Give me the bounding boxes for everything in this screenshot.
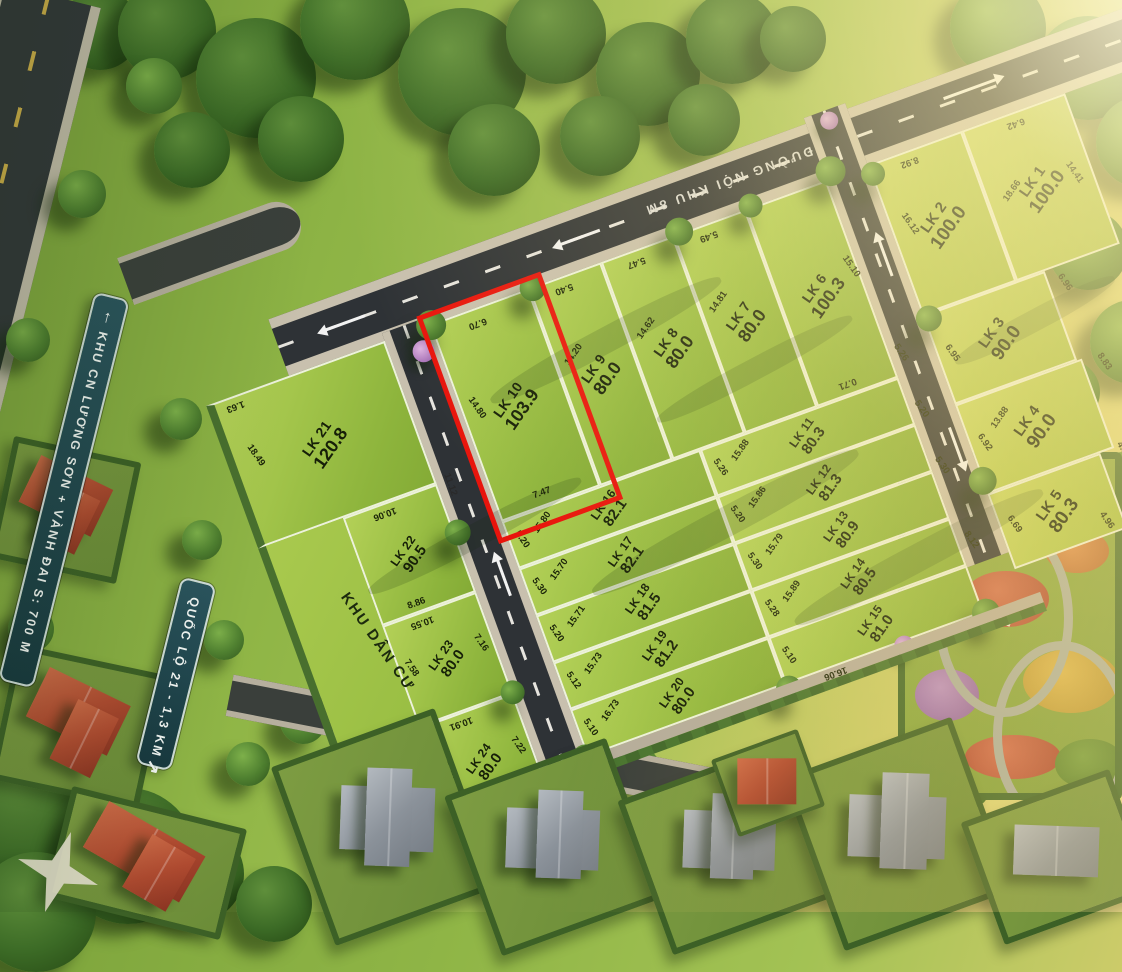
branch-road-stub (117, 195, 308, 305)
plot-dim: 6.95 (943, 342, 963, 363)
plot-dim: 5.20 (547, 623, 567, 644)
arrow-up-icon: ↑ (101, 307, 114, 328)
plot-dim: 5.26 (711, 456, 731, 477)
plot-dim: 5.10 (581, 717, 601, 738)
plot-dim: 10.55 (409, 613, 435, 631)
tree (160, 398, 202, 440)
tree (58, 170, 106, 218)
tree (126, 58, 182, 114)
plot-label: LK 2100.0 (914, 194, 970, 253)
tree (204, 620, 244, 660)
plot-label: LK 880.0 (649, 324, 696, 372)
plot-label: LK 780.0 (722, 298, 769, 346)
plot-label: LK 490.0 (1010, 401, 1060, 451)
plot-dim: 5.40 (553, 281, 574, 298)
road-sign-label: QUỐC LỘ 21 - 1,3 KM (148, 596, 202, 760)
plot-dim: 5.12 (564, 670, 584, 691)
plot-dim: 0.71 (837, 376, 858, 393)
plot-dim: 15.73 (582, 651, 605, 677)
plot-label: LK 1782.1 (605, 534, 648, 578)
villa-roof (536, 790, 584, 880)
plot-dim: 15.79 (763, 531, 786, 557)
plot-dim: 15.71 (565, 604, 588, 630)
plot-label: LK 390.0 (975, 313, 1025, 363)
plot-dim: 7.22 (508, 735, 528, 756)
tree (258, 96, 344, 182)
tree (226, 742, 270, 786)
masterplan-canvas: { "signs": { "sign1": "KHU CN LƯƠNG SƠN … (0, 0, 1122, 912)
plot-dim: 1.63 (225, 398, 246, 415)
plot-dim: 5.49 (698, 228, 719, 245)
tree (182, 520, 222, 560)
plot-dim: 14.62 (635, 315, 658, 341)
tree (236, 866, 312, 942)
villa-roof (364, 768, 413, 867)
villa-roof (879, 772, 929, 870)
plot-dim: 5.10 (779, 644, 799, 665)
plot-dim: 15.89 (780, 578, 803, 604)
plot-dim: 10.91 (448, 714, 474, 732)
plot-dim: 15.70 (548, 557, 571, 583)
plot-label: LK 2380.0 (426, 638, 469, 682)
plot-label: LK 21120.8 (298, 416, 351, 472)
plot-dim: 6.92 (975, 432, 995, 453)
plot-dim: 13.88 (988, 405, 1011, 431)
plot-dim: 18.49 (245, 443, 268, 469)
villa-roof (1013, 825, 1099, 877)
plot-dim: 5.28 (762, 597, 782, 618)
plot-dim: 5.30 (745, 550, 765, 571)
plot-dim: 6.42 (1005, 115, 1026, 132)
villa-roof-red (737, 758, 796, 804)
plot-label: LK 6100.3 (795, 266, 848, 322)
tree (760, 6, 826, 72)
tree (668, 84, 740, 156)
plot-dim: 8.92 (899, 154, 920, 171)
plot-label: LK 2080.0 (656, 675, 699, 719)
plot-label: LK 1281.3 (803, 462, 846, 506)
plot-dim: 7.16 (471, 632, 491, 653)
plot-label: LK 580.3 (1033, 486, 1083, 536)
tree (560, 96, 640, 176)
plot-label: LK 1480.5 (838, 556, 881, 600)
plot-label: LK 1981.2 (639, 628, 682, 672)
plot-dim: 15.88 (729, 437, 752, 463)
tree (300, 0, 410, 80)
plot-dim: 5.20 (728, 503, 748, 524)
plot-dim: 14.81 (707, 289, 730, 315)
plot-label: LK 1180.3 (787, 415, 829, 459)
plot-dim: 8.86 (406, 595, 427, 612)
tree (6, 318, 50, 362)
arrow-down-right-icon: ↘ (143, 756, 162, 779)
plot-dim: 6.69 (1005, 514, 1025, 535)
tree (154, 112, 230, 188)
plot-dim: 10.06 (372, 505, 398, 523)
plot-dim: 16.73 (599, 698, 622, 724)
plot-label: LK 1581.0 (855, 603, 898, 647)
plot-dim: 15.86 (746, 484, 769, 510)
plot-dim: 5.30 (529, 576, 549, 597)
tree (448, 104, 540, 196)
plot-label: LK 2290.5 (388, 533, 431, 577)
plot-dim: 5.47 (626, 254, 647, 271)
plot-label: LK 1881.5 (622, 581, 665, 625)
plot-label: LK 1380.9 (821, 509, 864, 553)
plot-label: LK 1100.0 (1013, 158, 1069, 217)
